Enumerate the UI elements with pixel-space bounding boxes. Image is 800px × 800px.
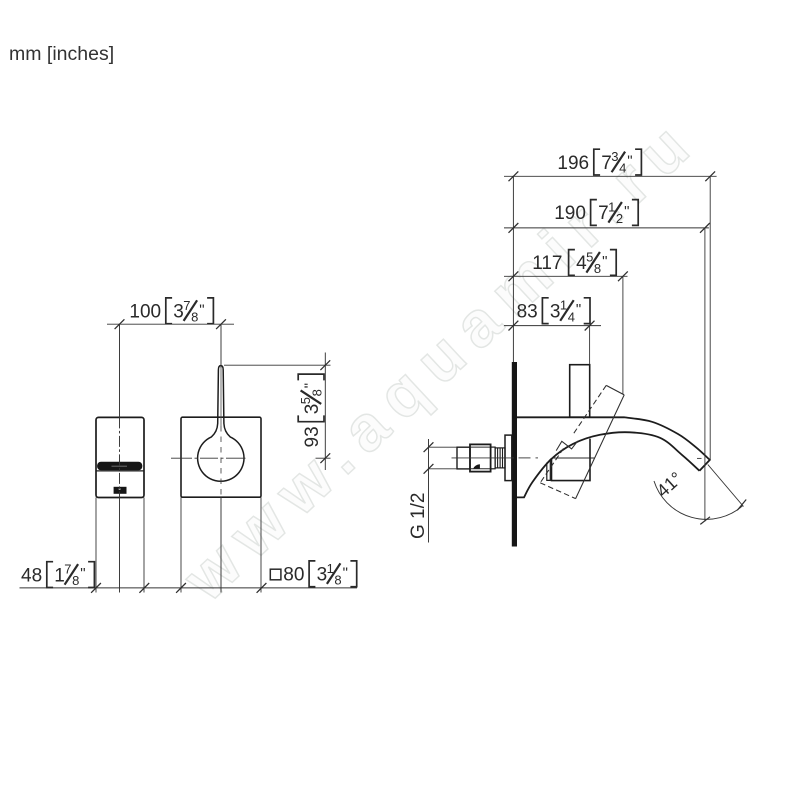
svg-text:3: 3 xyxy=(550,301,561,322)
svg-text:2: 2 xyxy=(616,211,623,226)
svg-text:93: 93 xyxy=(302,426,323,447)
svg-text:100: 100 xyxy=(129,302,161,323)
svg-text:7: 7 xyxy=(601,153,612,174)
svg-text:": " xyxy=(199,301,204,318)
svg-text:8: 8 xyxy=(334,572,341,587)
svg-text:4: 4 xyxy=(619,161,626,176)
svg-text:": " xyxy=(627,153,632,170)
svg-text:117: 117 xyxy=(532,253,562,274)
svg-text:190: 190 xyxy=(554,203,586,224)
svg-text:3: 3 xyxy=(173,302,184,323)
svg-text:8: 8 xyxy=(310,389,325,396)
svg-text:80: 80 xyxy=(283,565,304,586)
svg-text:3: 3 xyxy=(317,565,328,586)
svg-text:7: 7 xyxy=(598,203,609,224)
svg-text:48: 48 xyxy=(21,565,42,586)
svg-text:G 1/2: G 1/2 xyxy=(408,493,429,539)
svg-text:": " xyxy=(302,383,319,388)
svg-text:mm [inches]: mm [inches] xyxy=(9,43,114,65)
svg-text:3: 3 xyxy=(302,404,323,415)
svg-text:": " xyxy=(343,564,348,581)
svg-text:4: 4 xyxy=(568,309,575,324)
svg-text:8: 8 xyxy=(594,261,601,276)
svg-text:": " xyxy=(576,301,581,318)
svg-text:": " xyxy=(624,203,629,220)
svg-text:8: 8 xyxy=(191,309,198,324)
svg-text:1: 1 xyxy=(54,565,65,586)
svg-text:196: 196 xyxy=(557,153,589,174)
svg-text:": " xyxy=(602,253,607,270)
svg-text:83: 83 xyxy=(517,301,538,322)
svg-text:": " xyxy=(80,565,85,582)
svg-text:8: 8 xyxy=(72,573,79,588)
